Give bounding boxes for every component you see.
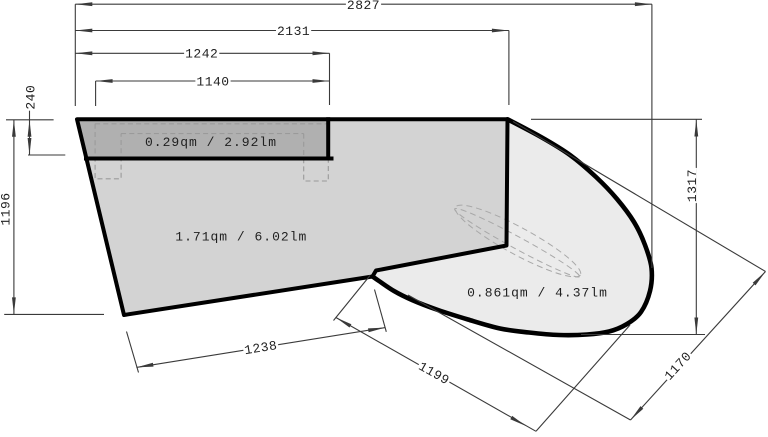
svg-text:240: 240 xyxy=(24,85,39,110)
svg-text:0.861qm / 4.37lm: 0.861qm / 4.37lm xyxy=(467,285,608,300)
svg-text:1.71qm / 6.02lm: 1.71qm / 6.02lm xyxy=(175,229,307,244)
svg-text:0.29qm / 2.92lm: 0.29qm / 2.92lm xyxy=(145,135,277,150)
svg-text:1199: 1199 xyxy=(416,359,452,388)
svg-text:1238: 1238 xyxy=(243,338,278,358)
svg-text:1140: 1140 xyxy=(196,74,229,89)
svg-text:2131: 2131 xyxy=(277,24,310,39)
svg-text:1317: 1317 xyxy=(685,169,700,202)
svg-text:2827: 2827 xyxy=(347,0,380,13)
svg-text:1242: 1242 xyxy=(185,47,218,62)
svg-text:1196: 1196 xyxy=(0,192,14,225)
